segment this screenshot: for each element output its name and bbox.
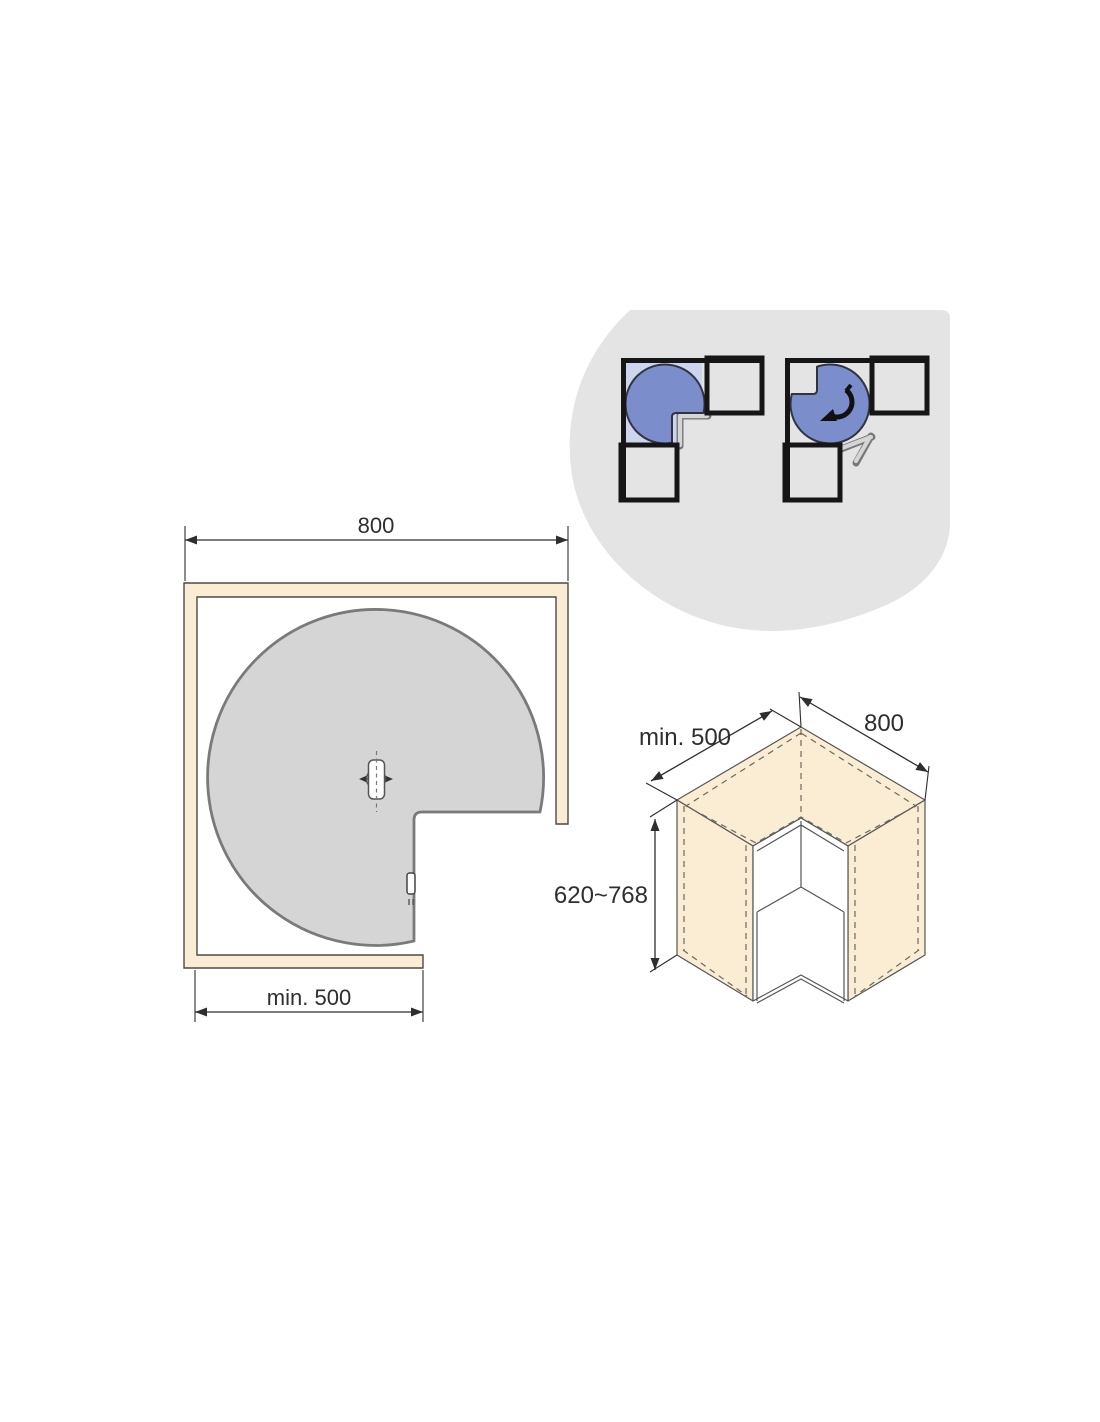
plan-front-dimension: min. 500 — [195, 970, 423, 1022]
plan-front-label: min. 500 — [267, 985, 351, 1010]
technical-drawing-canvas: 800 min. 500 min. 500 800 — [0, 0, 1100, 1422]
carousel-concept-inset — [570, 310, 950, 631]
hub-post — [369, 760, 385, 799]
iso-depth-label: min. 500 — [639, 724, 731, 751]
corner-cabinet-carousel-diagram: 800 min. 500 min. 500 800 — [0, 0, 1100, 1422]
plan-width-label: 800 — [358, 513, 395, 538]
iso-height-label: 620~768 — [554, 882, 648, 909]
iso-width-label: 800 — [864, 710, 904, 737]
plan-view: 800 min. 500 — [184, 513, 568, 1022]
iso-height-dimension: 620~768 — [554, 800, 677, 972]
iso-view: min. 500 800 620~768 — [554, 692, 929, 1003]
plan-width-dimension: 800 — [185, 513, 568, 581]
